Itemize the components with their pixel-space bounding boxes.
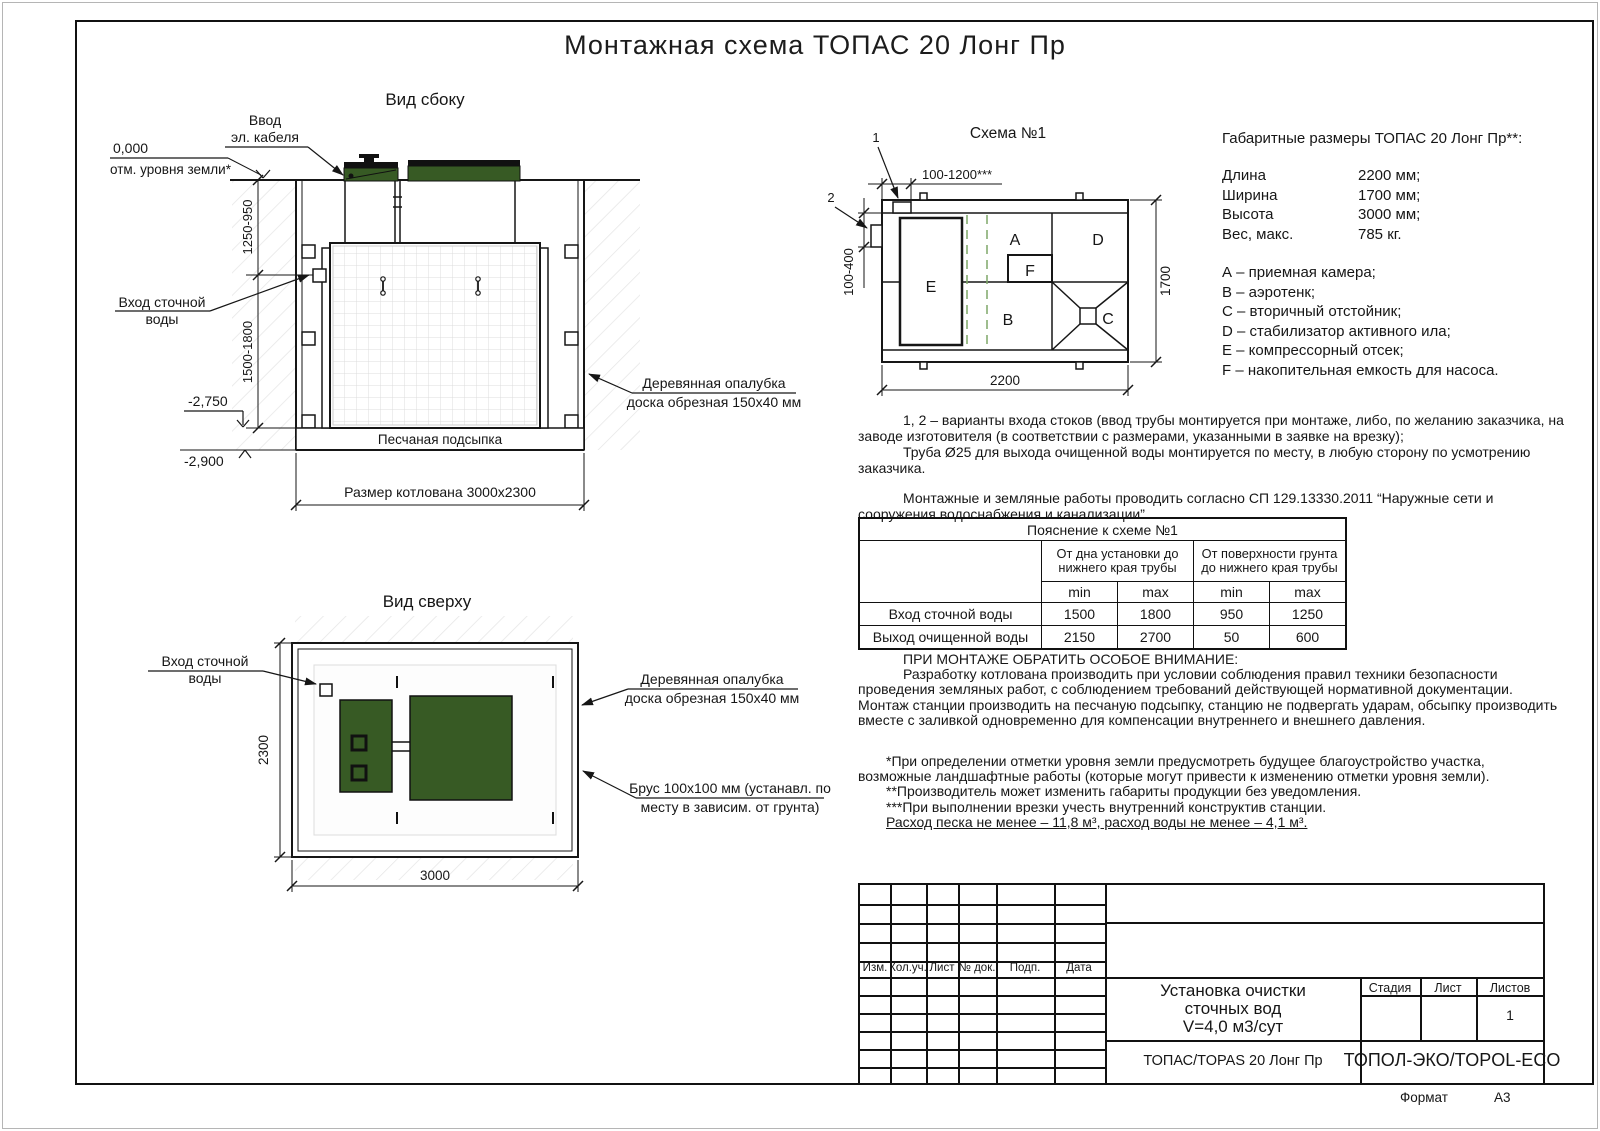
svg-text:доска обрезная 150х40 мм: доска обрезная 150х40 мм [625, 690, 800, 706]
footnote-2: **Производитель может изменить габариты … [858, 784, 1558, 799]
svg-text:Деревянная опалубка: Деревянная опалубка [640, 671, 783, 687]
svg-text:C: C [1102, 311, 1114, 328]
inlet-variant-2 [871, 225, 882, 247]
inlet-stub [313, 269, 326, 282]
table-cell: 600 [1269, 625, 1345, 648]
sheets-value: 1 [1506, 1007, 1514, 1023]
svg-text:0,000: 0,000 [113, 140, 148, 156]
format-label: Формат [1400, 1090, 1448, 1105]
attention-heading: ПРИ МОНТАЖЕ ОБРАТИТЬ ОСОБОЕ ВНИМАНИЕ: [858, 652, 1558, 667]
svg-text:Брус 100х100 мм (устанавл. по: Брус 100х100 мм (устанавл. по [629, 780, 831, 796]
spec-row: Ширина1700 мм; [1222, 187, 1567, 207]
section-legend: А – приемная камера; В – аэротенк; С – в… [1222, 263, 1567, 380]
legend-item: А – приемная камера; [1222, 263, 1567, 283]
sand-label: Песчаная подсыпка [378, 432, 503, 447]
svg-text:доска обрезная 150х40 мм: доска обрезная 150х40 мм [627, 394, 802, 410]
svg-text:E: E [926, 279, 937, 296]
svg-text:воды: воды [189, 670, 222, 686]
rev-col-list: Лист [930, 962, 955, 974]
note-pipe: Труба Ø25 для выхода очищенной воды монт… [858, 444, 1564, 476]
rev-col-podp: Подп. [1010, 962, 1041, 974]
svg-text:Вход сточной: Вход сточной [119, 294, 206, 310]
attention-body: Разработку котлована производить при усл… [858, 667, 1558, 728]
top-view-title: Вид сверху [383, 592, 472, 611]
inlet-stub-plan [320, 684, 332, 696]
pit-size-dimension: Размер котлована 3000х2300 [291, 453, 589, 511]
page-title: Монтажная схема ТОПАС 20 Лонг Пр [564, 30, 1066, 61]
table-cell: 1500 [1041, 602, 1117, 625]
note-variants: 1, 2 – варианты входа стоков (ввод трубы… [858, 412, 1564, 444]
svg-text:Вход сточной: Вход сточной [162, 653, 249, 669]
svg-text:Ввод: Ввод [249, 112, 281, 128]
legend-item: D – стабилизатор активного ила; [1222, 322, 1567, 342]
svg-text:эл. кабеля: эл. кабеля [231, 129, 299, 145]
doc-title-line: V=4,0 м3/сут [1183, 1017, 1283, 1037]
table-cell: 2150 [1041, 625, 1117, 648]
table-cell: 1250 [1269, 602, 1345, 625]
schema-drawing: Схема №1 E A [810, 120, 1210, 410]
dimensions-block: Габаритные размеры ТОПАС 20 Лонг Пр**: Д… [1222, 130, 1567, 380]
rev-col-koluch: Кол.уч. [889, 962, 927, 974]
svg-text:2: 2 [827, 190, 834, 205]
beam-label: Брус 100х100 мм (устанавл. по месту в за… [583, 771, 831, 815]
rev-col-izm: Изм. [863, 962, 888, 974]
svg-text:F: F [1025, 263, 1035, 280]
spec-row: Вес, макс.785 кг. [1222, 226, 1567, 246]
schema-title: Схема №1 [970, 125, 1046, 142]
svg-text:2200: 2200 [990, 373, 1020, 388]
side-view-title: Вид сбоку [385, 90, 465, 109]
svg-text:D: D [1092, 232, 1104, 249]
svg-text:B: B [1003, 312, 1014, 329]
formwork-label-plan: Деревянная опалубка доска обрезная 150х4… [582, 671, 799, 706]
consumption-note: Расход песка не менее – 11,8 м³, расход … [858, 815, 1558, 830]
schema-marker-2: 2 [827, 190, 867, 228]
sheet-label: Лист [1434, 981, 1461, 995]
spec-row: Высота3000 мм; [1222, 206, 1567, 226]
table-caption: Пояснение к схеме №1 [860, 519, 1345, 540]
table-cell: 1800 [1117, 602, 1193, 625]
spec-row: Длина2200 мм; [1222, 167, 1567, 187]
level-mark-sand: -2,900 [180, 450, 296, 469]
attention-block: ПРИ МОНТАЖЕ ОБРАТИТЬ ОСОБОЕ ВНИМАНИЕ: Ра… [858, 652, 1558, 830]
svg-text:воды: воды [146, 311, 179, 327]
side-view-drawing: Вид сбоку Песчаная подсыпка [80, 85, 840, 515]
tank-lids [344, 154, 520, 181]
top-view-drawing: Вид сверху [100, 590, 840, 920]
schema-dim-width: 2200 [877, 365, 1133, 396]
table-group-header: От поверхности грунтадо нижнего края тру… [1193, 540, 1345, 581]
footnote-1: *При определении отметки уровня земли пр… [858, 754, 1558, 784]
schema-marker-1: 1 [872, 130, 898, 198]
svg-text:100-1200***: 100-1200*** [922, 167, 992, 182]
schema-tank [871, 193, 1128, 369]
table-row-name: Выход очищенной воды [860, 625, 1041, 648]
table-subheader: min [1041, 581, 1117, 602]
big-lid-plan [410, 696, 512, 800]
table-group-header: От дна установки донижнего края трубы [1041, 540, 1193, 581]
doc-title-line: сточных вод [1185, 999, 1282, 1019]
notes-block: 1, 2 – варианты входа стоков (ввод трубы… [858, 412, 1564, 522]
legend-item: F – накопительная емкость для насоса. [1222, 361, 1567, 381]
table-blank-cell [860, 540, 1041, 602]
dimensions-title: Габаритные размеры ТОПАС 20 Лонг Пр**: [1222, 130, 1567, 147]
format-value: А3 [1494, 1090, 1511, 1105]
svg-text:2300: 2300 [256, 735, 271, 765]
svg-text:1500-1800: 1500-1800 [240, 321, 255, 383]
svg-text:A: A [1010, 232, 1021, 249]
zero-level-mark: 0,000 отм. уровня земли* [110, 140, 270, 178]
title-block: Изм. Кол.уч. Лист № док. Подп. Дата Уста… [858, 883, 1545, 1085]
svg-text:1: 1 [872, 130, 879, 145]
table-subheader: min [1193, 581, 1269, 602]
explanation-table: Пояснение к схеме №1 От дна установки до… [858, 517, 1347, 650]
table-cell: 2700 [1117, 625, 1193, 648]
drawing-sheet: Монтажная схема ТОПАС 20 Лонг Пр Вид сбо… [0, 0, 1600, 1131]
svg-text:3000: 3000 [420, 868, 450, 883]
svg-text:-2,900: -2,900 [184, 453, 224, 469]
svg-text:100-400: 100-400 [841, 248, 856, 296]
company-name: ТОПОЛ-ЭКО/TOPOL-ECO [1344, 1050, 1561, 1071]
inlet-label-plan: Вход сточной воды [148, 653, 316, 686]
footnote-3: ***При выполнении врезки учесть внутренн… [858, 800, 1558, 815]
table-cell: 950 [1193, 602, 1269, 625]
table-subheader: max [1269, 581, 1345, 602]
legend-item: В – аэротенк; [1222, 283, 1567, 303]
doc-title-line: Установка очистки [1160, 981, 1306, 1001]
stage-label: Стадия [1369, 981, 1412, 995]
big-lid [408, 166, 520, 181]
schema-dim-height: 1700 [1130, 195, 1173, 367]
svg-text:Деревянная опалубка: Деревянная опалубка [642, 375, 785, 391]
table-row-name: Вход сточной воды [860, 602, 1041, 625]
table-cell: 50 [1193, 625, 1269, 648]
table-subheader: max [1117, 581, 1193, 602]
legend-item: С – вторичный отстойник; [1222, 302, 1567, 322]
svg-text:1700: 1700 [1158, 266, 1173, 296]
product-name: ТОПАС/TOPAS 20 Лонг Пр [1143, 1053, 1322, 1069]
rev-col-data: Дата [1066, 962, 1091, 974]
svg-text:отм. уровня земли*: отм. уровня земли* [110, 162, 232, 177]
soil-hatch-top [295, 616, 573, 642]
inlet-variant-1 [893, 202, 911, 213]
legend-item: Е – компрессорный отсек; [1222, 341, 1567, 361]
svg-text:месту в зависим. от грунта): месту в зависим. от грунта) [641, 799, 820, 815]
tank-body [313, 180, 548, 428]
svg-text:1250-950: 1250-950 [240, 200, 255, 255]
svg-text:Размер котлована 3000х2300: Размер котлована 3000х2300 [344, 484, 536, 500]
sheets-label: Листов [1490, 981, 1531, 995]
rev-col-ndok: № док. [959, 962, 996, 974]
svg-text:-2,750: -2,750 [188, 393, 228, 409]
